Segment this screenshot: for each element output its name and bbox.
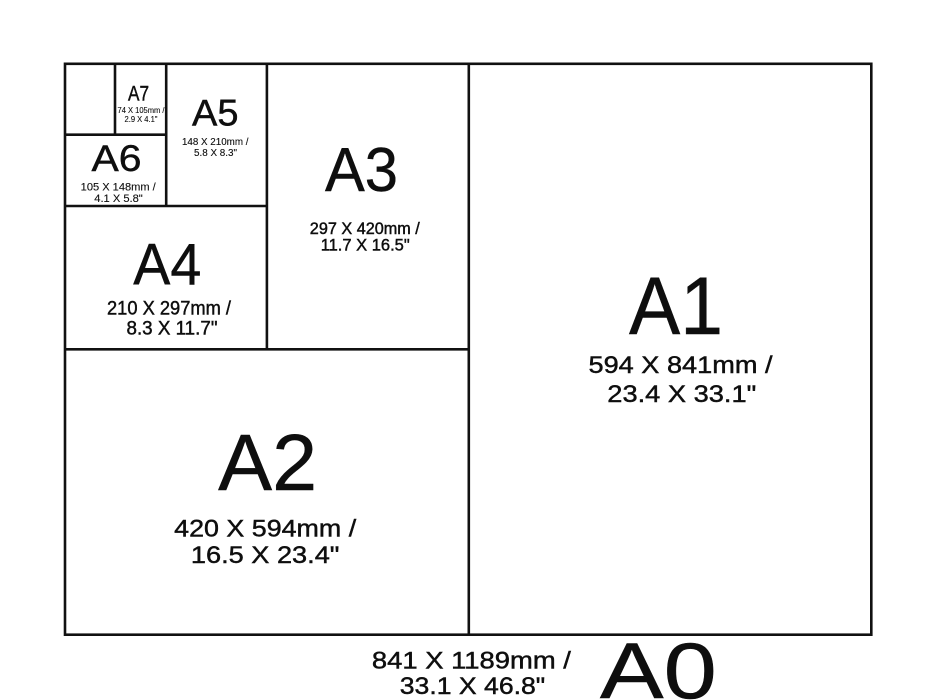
svg-text:2.9 X 4.1": 2.9 X 4.1"	[125, 115, 158, 124]
svg-text:841 X 1189mm /: 841 X 1189mm /	[372, 647, 571, 674]
svg-text:A4: A4	[133, 233, 201, 298]
svg-text:A5: A5	[192, 93, 239, 134]
svg-text:5.8 X 8.3": 5.8 X 8.3"	[194, 148, 237, 159]
svg-text:A1: A1	[629, 261, 723, 352]
svg-text:148 X 210mm /: 148 X 210mm /	[182, 137, 249, 148]
svg-text:297 X 420mm /: 297 X 420mm /	[310, 220, 420, 238]
svg-text:420 X 594mm /: 420 X 594mm /	[174, 516, 356, 543]
svg-text:594 X 841mm /: 594 X 841mm /	[589, 352, 773, 379]
svg-text:16.5 X 23.4": 16.5 X 23.4"	[191, 542, 340, 569]
svg-text:74 X 105mm /: 74 X 105mm /	[118, 106, 166, 115]
svg-text:A0: A0	[600, 626, 717, 700]
svg-text:33.1 X 46.8": 33.1 X 46.8"	[400, 673, 546, 700]
svg-text:8.3 X 11.7": 8.3 X 11.7"	[127, 318, 218, 340]
svg-text:11.7 X 16.5": 11.7 X 16.5"	[321, 237, 410, 255]
svg-text:210 X 297mm /: 210 X 297mm /	[107, 298, 232, 320]
svg-text:105 X 148mm /: 105 X 148mm /	[81, 182, 157, 194]
svg-text:23.4 X 33.1": 23.4 X 33.1"	[607, 381, 756, 408]
svg-text:A2: A2	[218, 418, 317, 507]
svg-text:A7: A7	[128, 83, 149, 106]
svg-text:4.1 X 5.8": 4.1 X 5.8"	[94, 193, 143, 205]
svg-text:A6: A6	[92, 138, 142, 179]
svg-text:A3: A3	[325, 136, 398, 205]
